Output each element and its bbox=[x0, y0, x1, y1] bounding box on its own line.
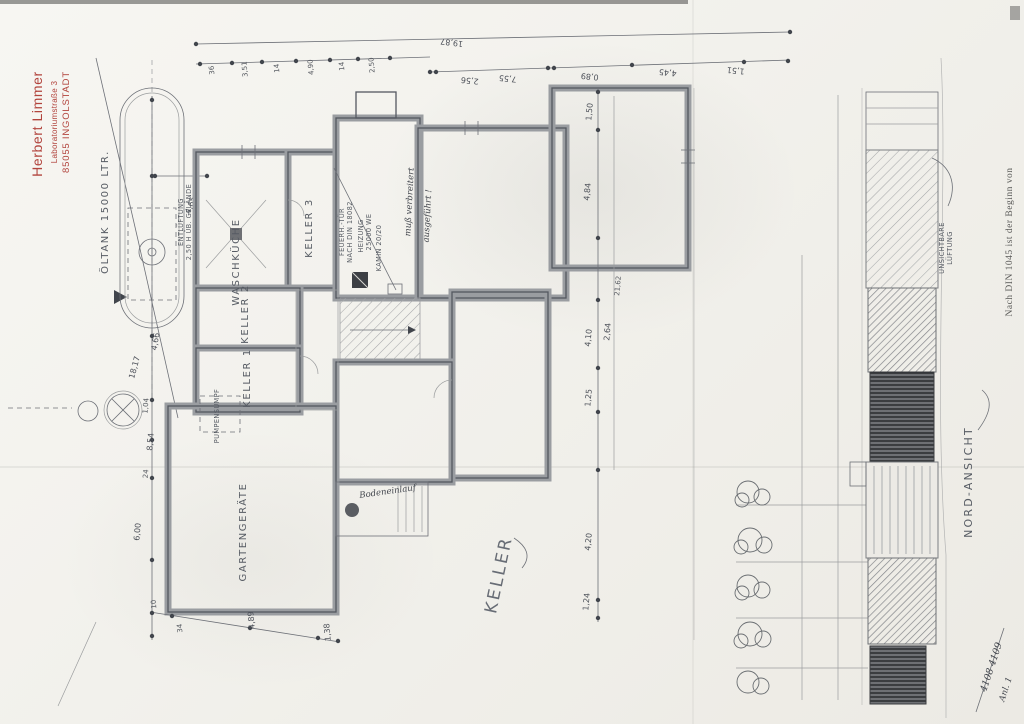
note-entlueftung-1: ENTLÜFTUNG bbox=[176, 198, 185, 246]
corner-note-1: 4108 4109 bbox=[978, 641, 1005, 694]
room-label-pumpensumpf: PUMPENSUMPF bbox=[213, 389, 221, 443]
corner-handwriting: 4108 4109 Anl. 1 bbox=[976, 628, 1015, 712]
note-feuertuer-2: NACH DIN 18082 bbox=[346, 201, 354, 263]
room-label-keller1: KELLER 1 bbox=[242, 348, 253, 408]
dim-right-6: 2,64 bbox=[602, 323, 613, 342]
dim-left-5: 24 bbox=[142, 469, 151, 479]
dim-top-2: 14 bbox=[273, 63, 282, 73]
dim-topright-3: 4,45 bbox=[658, 67, 677, 78]
dim-left-3: 1,04 bbox=[141, 397, 150, 414]
scanned-basement-plan: Herbert Limmer Laboratoriumstraße 3 8505… bbox=[0, 0, 1024, 724]
dim-bottom-1: 34 bbox=[176, 623, 185, 633]
note-heizung-1: HEIZUNG bbox=[357, 219, 365, 252]
bush-sketches bbox=[734, 481, 772, 694]
note-heizung-2: 25000 WE bbox=[365, 214, 373, 251]
dim-left-2: 18,17 bbox=[127, 355, 142, 379]
plan-title-keller: KELLER bbox=[481, 535, 517, 616]
dim-right-4: 4,20 bbox=[583, 533, 594, 552]
dim-right-3: 1,25 bbox=[583, 389, 594, 408]
room-label-keller3: KELLER 3 bbox=[304, 198, 315, 258]
dim-bottom-2: 4,89 bbox=[246, 611, 257, 630]
dim-bottom-3: 1,38 bbox=[322, 623, 333, 642]
note-bodeneinlauf: Bodeneinlauf bbox=[358, 483, 419, 501]
corner-note-2: Anl. 1 bbox=[997, 676, 1015, 704]
dim-left-6: 6,00 bbox=[132, 523, 143, 542]
room-label-gartengeraete: GARTENGERÄTE bbox=[236, 482, 249, 581]
note-vent-1: UNSICHTBARE bbox=[938, 222, 946, 274]
room-label-oeltank: ÖLTANK 15000 LTR. bbox=[98, 150, 111, 274]
dim-topright-0: 2,56 bbox=[460, 75, 479, 86]
dim-top-3: 4,90 bbox=[306, 59, 315, 75]
stamp-city: 85055 INGOLSTADT bbox=[61, 71, 72, 173]
north-elevation: UNSICHTBARE LÜFTUNG NORD-ANSICHT bbox=[694, 88, 989, 705]
floor-plan-drawing: Herbert Limmer Laboratoriumstraße 3 8505… bbox=[0, 0, 1024, 724]
dim-top-0: 36 bbox=[208, 65, 217, 75]
room-label-keller2: KELLER 2 bbox=[240, 284, 251, 344]
elevation-title: NORD-ANSICHT bbox=[962, 426, 975, 538]
dim-topright-2: 0,89 bbox=[580, 71, 599, 82]
dim-right-5: 1,24 bbox=[581, 593, 592, 612]
note-feuertuer-1: FEUERH.-TÜR bbox=[337, 208, 346, 256]
dim-bottom-0: 10 bbox=[150, 599, 159, 609]
stamp-name: Herbert Limmer bbox=[29, 71, 45, 177]
dark-window-band bbox=[870, 372, 934, 462]
dim-right-2: 4,10 bbox=[583, 329, 594, 348]
dim-top-1: 3,51 bbox=[240, 61, 249, 77]
note-entlueftung-2: 2,50 H ÜB. GELÄNDE bbox=[184, 184, 193, 260]
note-vent-2: LÜFTUNG bbox=[945, 231, 954, 265]
dim-topright-1: 7,55 bbox=[498, 73, 517, 84]
dim-right-1: 4,84 bbox=[582, 183, 593, 202]
address-stamp: Herbert Limmer Laboratoriumstraße 3 8505… bbox=[29, 71, 72, 177]
dim-right-0: 1,50 bbox=[584, 103, 595, 122]
margin-din-note: Nach DIN 1045 ist der Beginn von bbox=[1005, 168, 1015, 317]
note-kamin: KAMIN 20/20 bbox=[375, 225, 383, 272]
stamp-street: Laboratoriumstraße 3 bbox=[50, 81, 59, 164]
dim-right-7: 21,62 bbox=[613, 275, 623, 296]
dim-top-4: 14 bbox=[338, 61, 347, 71]
handwritten-note-2: ausgeführt ! bbox=[422, 189, 435, 243]
floor-drain bbox=[345, 503, 359, 517]
dim-top-5: 2,50 bbox=[367, 57, 376, 73]
dim-topright-4: 1,51 bbox=[726, 65, 745, 76]
dim-left-4: 8,54 bbox=[145, 433, 156, 452]
dimension-chains: 19,87 36 3,51 14 4,90 14 2,50 2,56 7,55 … bbox=[127, 30, 792, 643]
manhole-symbol bbox=[78, 401, 98, 421]
dim-left-1: 4,66 bbox=[150, 332, 162, 351]
